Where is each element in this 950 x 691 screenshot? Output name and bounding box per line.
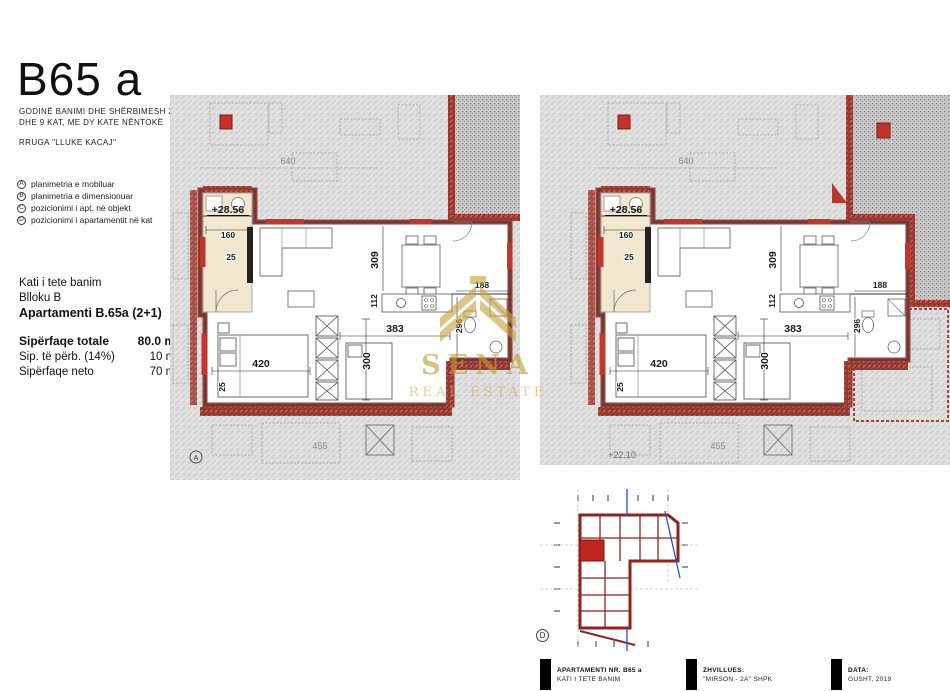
floor-plan-dimensioned-drawing: 640 <box>540 95 950 465</box>
section-lines <box>627 489 680 651</box>
dining-furniture <box>800 236 838 296</box>
street-address: RRUGA "LLUKE KACAJ" <box>19 138 116 147</box>
legend-label-c: pozicionimi i apt. në objekt <box>31 202 131 214</box>
dim-dining-depth: 309 <box>369 251 381 269</box>
neighbor-level-label: +22.10 <box>608 450 636 460</box>
neighbor-dense-zone <box>915 217 950 300</box>
pillow <box>220 338 236 351</box>
dim-bedroom-width: 420 <box>252 358 270 370</box>
legend-label-d: pozicionimi i apartamentit në kat <box>31 214 152 226</box>
plan-marker-d-letter: D <box>540 631 546 640</box>
titleblock-date: DATA: GUSHT, 2019 <box>831 659 948 690</box>
area-label-net: Sipërfaqe neto <box>19 365 94 381</box>
dim-bath-depth: 296 <box>454 319 464 333</box>
red-wall-band-left <box>190 190 197 405</box>
plan-marker-a: A <box>193 453 198 462</box>
red-shaft-marker <box>220 115 232 129</box>
dim-bath-width: 188 <box>873 280 887 290</box>
red-wall-band-bath <box>851 361 908 370</box>
dim-wall: 112 <box>369 294 379 308</box>
titleblock-bar <box>540 659 551 690</box>
dim-hall-width: 160 <box>619 230 633 240</box>
level-label: +28.56 <box>610 204 643 216</box>
titleblock-date-sub: GUSHT, 2019 <box>848 676 891 683</box>
dim-room2-width: 383 <box>784 323 802 335</box>
building-description: GODINË BANIMI DHE SHËRBIMESH 2, 7DHE 9 K… <box>19 106 183 128</box>
dim-bed-side: 25 <box>217 382 227 392</box>
drawing-sheet: B65 a GODINË BANIMI DHE SHËRBIMESH 2, 7D… <box>0 0 950 691</box>
red-wall-band-step <box>446 361 453 407</box>
wardrobe-column <box>316 316 338 400</box>
area-label-common: Sip. të përb. (14%) <box>19 350 115 366</box>
floor-name: Kati i tete banim <box>19 276 101 291</box>
legend-item-b: Bplanimetria e dimensionuar <box>17 190 152 202</box>
titleblock-bar <box>831 659 842 690</box>
highlighted-apartment <box>580 540 604 561</box>
kitchen <box>780 294 850 312</box>
red-wall-band <box>846 95 853 221</box>
area-table: Sipërfaqe totale80.0 m² Sip. të përb. (1… <box>19 334 179 381</box>
dim-bed-side: 25 <box>615 382 625 392</box>
legend: Aplanimetria e mobiluar Bplanimetria e d… <box>17 178 152 226</box>
balcony-red-edge <box>601 186 650 192</box>
keyplan-drawing <box>530 483 710 655</box>
legend-item-d: Dpozicionimi i apartamentit në kat <box>17 214 152 226</box>
legend-key-a: A <box>17 180 26 189</box>
pillow <box>746 345 760 357</box>
legend-key-b: B <box>17 192 26 201</box>
building-description-line2: DHE 9 KAT, ME DY KATE NËNTOKË <box>19 118 163 127</box>
washbasin <box>490 341 502 353</box>
title-block: APARTAMENTI NR. B65 a KATI I TETE BANIM … <box>540 659 948 690</box>
nightstand <box>616 323 627 333</box>
floor-plan-furnished-drawing: 640 <box>170 95 520 480</box>
red-wall-band <box>448 95 455 221</box>
neighbor-dense-zone <box>454 95 520 217</box>
dining-furniture <box>402 236 440 296</box>
titleblock-developer-title: ZHVILLUES: <box>703 667 772 674</box>
dim-hall-note: 25 <box>624 252 634 262</box>
chair <box>406 236 418 244</box>
titleblock-apartment-sub: KATI I TETE BANIM <box>557 676 642 683</box>
titleblock-apartment-title: APARTAMENTI NR. B65 a <box>557 667 642 674</box>
titleblock-developer-sub: "MIRSON - 2A" SHPK <box>703 676 772 683</box>
pillow <box>220 353 236 366</box>
legend-label-b: planimetria e dimensionuar <box>31 190 133 202</box>
red-wall-band <box>908 300 950 307</box>
block-name: Blloku B <box>19 291 101 306</box>
neighbor-dim-bottom: 455 <box>710 441 725 451</box>
area-label-total: Sipërfaqe totale <box>19 334 109 350</box>
pillow <box>348 345 362 357</box>
area-row-net: Sipërfaqe neto70 m² <box>19 365 179 381</box>
plan-marker-d: D <box>536 629 549 642</box>
toilet <box>863 318 874 333</box>
dim-room2-width: 383 <box>386 323 404 335</box>
neighbor-dim-top: 640 <box>280 156 295 166</box>
floor-plan-furnished: 640 <box>170 95 520 480</box>
balcony-red-edge <box>203 186 252 192</box>
bedroom2-furniture <box>744 343 790 399</box>
dim-dining-depth: 309 <box>767 251 779 269</box>
red-wall-band-step <box>844 361 851 407</box>
keyplan-position-on-floor: D <box>530 483 710 655</box>
location-info: Kati i tete banim Blloku B <box>19 276 101 306</box>
kitchen <box>382 294 452 312</box>
dim-bedroom-width: 420 <box>650 358 668 370</box>
legend-item-a: Aplanimetria e mobiluar <box>17 178 152 190</box>
red-wall-band-left <box>588 190 595 405</box>
legend-item-c: Cpozicionimi i apt. në objekt <box>17 202 152 214</box>
chair <box>424 236 436 244</box>
red-wall-band-bottom <box>598 407 850 416</box>
dim-room2-depth: 300 <box>759 352 771 370</box>
area-row-total: Sipërfaqe totale80.0 m² <box>19 334 179 350</box>
titleblock-date-title: DATA: <box>848 667 891 674</box>
chair <box>822 236 834 244</box>
legend-key-d: D <box>17 216 26 225</box>
dining-table <box>800 245 838 287</box>
titleblock-bar <box>686 659 697 690</box>
dim-bath-depth: 296 <box>852 319 862 333</box>
red-wall-band-bath <box>453 361 510 370</box>
pillow <box>618 338 634 351</box>
chair <box>804 236 816 244</box>
wardrobe-column <box>714 316 736 400</box>
dim-hall-width: 160 <box>221 230 235 240</box>
page-title: B65 a <box>17 52 142 106</box>
neighbor-dim-bottom: 455 <box>312 441 327 451</box>
dim-wall: 112 <box>767 294 777 308</box>
legend-key-c: C <box>17 204 26 213</box>
nightstand <box>218 323 229 333</box>
wall-fill <box>645 227 651 283</box>
legend-label-a: planimetria e mobiluar <box>31 178 115 190</box>
toilet <box>465 318 476 333</box>
red-shaft-marker <box>877 123 890 138</box>
pillow <box>618 353 634 366</box>
wall-fill <box>247 227 253 283</box>
apartment-name: Apartamenti B.65a (2+1) <box>19 306 162 320</box>
red-wall-band-bottom <box>200 407 452 416</box>
dim-bath-width: 188 <box>475 280 489 290</box>
area-row-common: Sip. të përb. (14%)10 m² <box>19 350 179 366</box>
neighbor-dim-top: 640 <box>678 156 693 166</box>
red-shaft-marker <box>618 115 630 129</box>
titleblock-apartment: APARTAMENTI NR. B65 a KATI I TETE BANIM <box>540 659 686 690</box>
building-description-line1: GODINË BANIMI DHE SHËRBIMESH 2, 7 <box>19 107 183 116</box>
bedroom2-furniture <box>346 343 392 399</box>
building-outline <box>580 515 678 645</box>
dim-room2-depth: 300 <box>361 352 373 370</box>
washbasin <box>888 341 900 353</box>
dim-hall-note: 25 <box>226 252 236 262</box>
neighbor-dense-zone <box>852 95 950 217</box>
titleblock-developer: ZHVILLUES: "MIRSON - 2A" SHPK <box>686 659 831 690</box>
level-label: +28.56 <box>212 204 245 216</box>
floor-plan-dimensioned: 640 <box>540 95 950 465</box>
dining-table <box>402 245 440 287</box>
